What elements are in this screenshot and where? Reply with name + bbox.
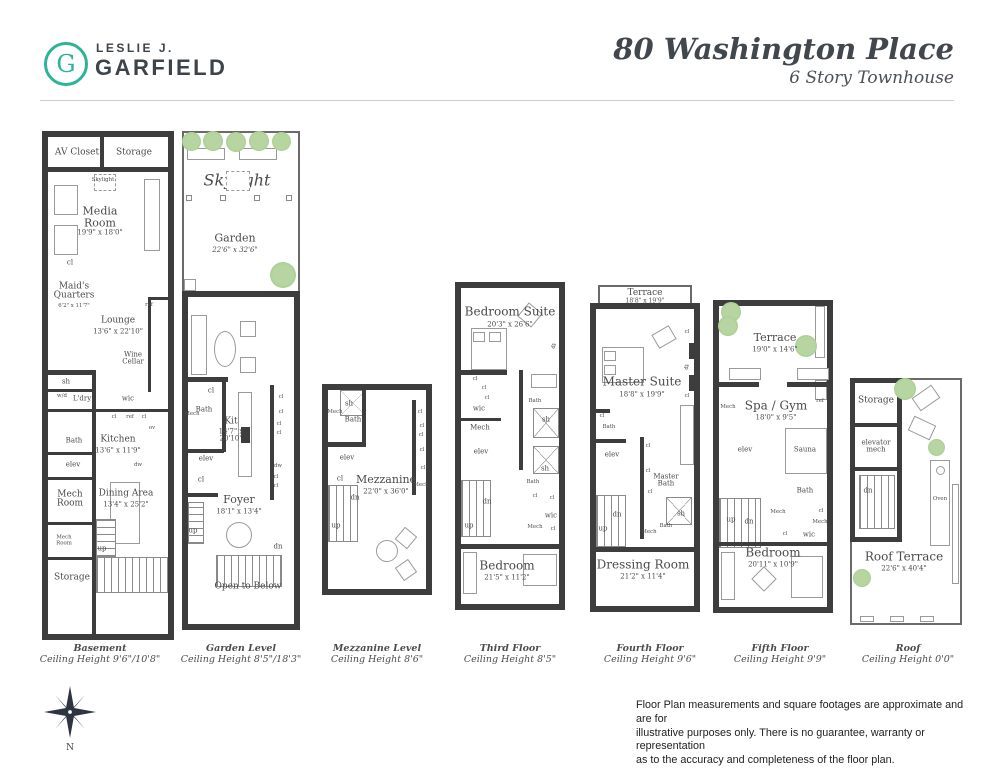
- parapet-post: [890, 616, 904, 622]
- fridge-label: ref: [816, 399, 824, 405]
- bath-label: Bath: [603, 425, 616, 431]
- dishwasher-label: dw: [134, 463, 142, 469]
- bench: [797, 368, 829, 380]
- caption-name: Roof: [823, 643, 993, 654]
- stairs: [96, 557, 168, 593]
- armchair: [395, 527, 418, 550]
- sofa: [721, 552, 735, 600]
- laundry-label: L'dry: [73, 395, 91, 402]
- plan-fourth-floor: Terrace 18'8" x 19'9" Master Suite 18'8"…: [590, 285, 700, 612]
- room-label: Bedroom: [745, 547, 800, 560]
- closet-label: cl: [277, 431, 282, 437]
- pillow: [473, 332, 485, 342]
- room-label: Storage: [54, 573, 90, 582]
- mech-label: Mech: [184, 412, 199, 418]
- stairs: [859, 475, 895, 529]
- room-label: AV Closet: [55, 148, 99, 157]
- closet-label: cl: [279, 395, 284, 401]
- wall-segment: [48, 557, 92, 560]
- closet-label: cl: [337, 475, 343, 482]
- room-label: Garden: [214, 232, 255, 245]
- wic-label: wic: [803, 531, 815, 538]
- tree: [894, 378, 916, 400]
- stairs-up-label: up: [599, 525, 608, 532]
- stairs-down-label: dn: [864, 487, 873, 494]
- bath-label: Bath: [797, 487, 814, 494]
- closet-label: cl: [198, 476, 204, 483]
- stairs-up-label: up: [189, 527, 198, 534]
- closet-label: cl: [208, 387, 214, 394]
- room-dims: 20'3" x 26'6": [487, 321, 532, 328]
- room-label: Dressing Room: [597, 559, 690, 572]
- sauna-label: Sauna: [794, 446, 816, 453]
- floor-plan-sheet: G LESLIE J. GARFIELD 80 Washington Place…: [0, 0, 994, 768]
- room-label: Bedroom: [479, 560, 534, 573]
- stairs: [596, 495, 626, 547]
- disclaimer-line: Floor Plan measurements and square foota…: [636, 699, 966, 727]
- room-label: Master Bath: [649, 474, 683, 489]
- page-title: 80 Washington Place: [613, 32, 954, 66]
- wall-segment: [362, 390, 366, 447]
- oven-label: ov: [149, 426, 155, 432]
- fridge-label: ref: [145, 303, 153, 309]
- room-label: Master Suite: [603, 376, 682, 389]
- wall-segment: [48, 370, 96, 375]
- bath-label: Bath: [660, 524, 673, 530]
- tree: [795, 335, 817, 357]
- closet-label: cl: [473, 377, 478, 383]
- closet-label: cl: [819, 509, 824, 515]
- plan-garden-level: Skylight Garden 22'6" x 32'6" cl Bath Me…: [182, 131, 300, 630]
- armchair: [651, 325, 676, 349]
- closet-label: cl: [648, 490, 653, 496]
- logo-letter: G: [56, 52, 75, 76]
- tree: [226, 132, 246, 152]
- stairs-up-label: up: [98, 545, 107, 552]
- tree: [203, 131, 223, 151]
- room-dims: 18'8" x 19'9": [619, 391, 664, 398]
- vanity: [680, 405, 694, 465]
- wall-segment: [188, 493, 218, 497]
- wall-segment: [855, 423, 897, 427]
- closet-label: cl: [274, 475, 279, 481]
- skylight-label: Skylight: [92, 178, 115, 184]
- room-label: Mech Room: [47, 491, 93, 510]
- closet-label: cl: [600, 414, 605, 420]
- room-dims: 22'6" x 32'6": [212, 246, 257, 254]
- wall-segment: [48, 522, 92, 525]
- room-dims: 22'6" x 40'4": [881, 565, 926, 572]
- sofa: [54, 225, 78, 255]
- fridge-label: ref: [126, 415, 134, 421]
- column-marker: [254, 195, 260, 201]
- closet-label: cl: [418, 410, 423, 416]
- wic-label: wic: [473, 405, 485, 412]
- mech-label: Mech: [327, 410, 342, 416]
- wic-label: wic: [545, 512, 557, 519]
- elevator-label: elev: [66, 461, 80, 468]
- mech-label: Mech: [470, 424, 490, 431]
- tree: [928, 439, 945, 456]
- elevator-label: elev: [738, 446, 752, 453]
- fireplace-label: fp: [682, 364, 688, 369]
- room-label: Mezzanine: [356, 474, 416, 486]
- plan-third-floor: Bedroom Suite 20'3" x 26'6" fp cl cl cl …: [455, 282, 565, 610]
- closet-label: cl: [550, 496, 555, 502]
- stairs: [188, 502, 204, 544]
- column-marker: [220, 195, 226, 201]
- room-label: Media Room: [77, 205, 123, 228]
- closet-label: cl: [685, 330, 690, 336]
- closet-label: cl: [421, 466, 426, 472]
- sink: [936, 466, 945, 475]
- fireplace-label: fp: [549, 343, 555, 348]
- bathtub: [531, 374, 557, 388]
- plan-fifth-floor: Terrace 19'0" x 14'6" Spa / Gym 18'0" x …: [713, 300, 833, 613]
- room-label: Storage: [116, 148, 152, 157]
- stairs-up-label: up: [465, 522, 474, 529]
- brand-name-last: GARFIELD: [95, 55, 227, 81]
- bath-label: Bath: [529, 399, 542, 405]
- room-label: Lounge: [101, 316, 135, 325]
- stairs: [719, 498, 761, 548]
- shower-label: sh: [541, 465, 549, 472]
- closet-label: cl: [274, 484, 279, 490]
- room-dims: 20'11" x 10'9": [748, 561, 798, 568]
- shower-label: sh: [677, 510, 685, 517]
- wall-segment: [719, 382, 759, 387]
- sofa: [54, 185, 78, 215]
- wall-segment: [48, 167, 168, 172]
- room-dims: 13'4" x 25'2": [103, 501, 148, 508]
- disclaimer-line: illustrative purposes only. There is no …: [636, 727, 966, 755]
- wall-segment: [640, 437, 644, 539]
- room-label: Terrace: [754, 332, 797, 344]
- wall-segment: [519, 370, 523, 470]
- tree: [270, 262, 296, 288]
- foyer-table: [226, 522, 252, 548]
- pillow: [604, 365, 616, 375]
- closet-label: cl: [783, 532, 788, 538]
- stairs-down-label: dn: [351, 494, 360, 501]
- sofa: [463, 552, 477, 594]
- room-dims: 18'1" x 13'4": [216, 508, 261, 515]
- roof-bulkhead: Storage elevator mech dn: [850, 378, 902, 542]
- compass-north-label: N: [38, 743, 102, 753]
- tree: [249, 131, 269, 151]
- wall-segment: [596, 547, 694, 552]
- bath-label: Bath: [527, 480, 540, 486]
- tree: [272, 132, 291, 151]
- planter: [815, 306, 825, 358]
- wall-segment: [855, 467, 897, 471]
- stairs-down-label: dn: [274, 543, 283, 550]
- room-label: Kitchen: [100, 435, 135, 444]
- room-label: Foyer: [223, 494, 255, 506]
- armchair: [751, 566, 776, 591]
- armchair: [395, 559, 417, 581]
- bath-label: Bath: [66, 437, 83, 444]
- room-label: Maid's Quarters: [51, 283, 97, 302]
- plan-roof: Storage elevator mech dn Oven Roof Terra…: [850, 378, 962, 625]
- room-dims: 21'5" x 11'2": [484, 574, 529, 581]
- room-label: Terrace: [628, 288, 663, 298]
- wall-segment: [148, 297, 168, 300]
- mech-label: Mech: [812, 520, 827, 526]
- wall-segment: [148, 297, 151, 392]
- caption-roof: Roof Ceiling Height 0'0": [823, 643, 993, 665]
- room-label: Spa / Gym: [745, 400, 807, 413]
- wall-segment: [48, 477, 92, 480]
- mech-label: Mech: [770, 510, 785, 516]
- header-divider: [40, 100, 954, 101]
- room-label: Dining Area: [99, 489, 154, 498]
- room-label: elevator mech: [857, 440, 895, 455]
- room-dims: 19'9" x 18'0": [77, 229, 122, 236]
- closet-label: cl: [420, 448, 425, 454]
- wall-segment: [48, 452, 92, 455]
- room-dims: 13'6" x 11'9": [95, 447, 140, 454]
- closet-label: cl: [67, 259, 73, 266]
- wall-segment: [48, 389, 92, 392]
- room-label: Roof Terrace: [865, 551, 943, 564]
- tree: [182, 132, 201, 151]
- wall-pier: [689, 375, 694, 391]
- oven-label: Oven: [933, 497, 947, 503]
- coffee-table: [214, 331, 236, 367]
- wall-segment: [596, 439, 626, 443]
- compass-star: [39, 686, 101, 738]
- room-dims: 14'7" x 20'10": [216, 429, 246, 444]
- armchair: [240, 357, 256, 373]
- closet-label: cl: [419, 433, 424, 439]
- room-dims: 13'6" x 22'10": [93, 328, 143, 335]
- planter: [184, 279, 196, 291]
- bath-label: Bath: [345, 416, 362, 423]
- elevator-label: elev: [474, 448, 488, 455]
- parapet-post: [860, 616, 874, 622]
- closet-label: cl: [533, 494, 538, 500]
- stairs-up-label: up: [332, 522, 341, 529]
- closet-label: cl: [112, 415, 117, 421]
- mech-label: Mech: [641, 530, 656, 536]
- mech-label: Mech: [413, 483, 428, 489]
- closet-label: cl: [277, 422, 282, 428]
- stairs-down-label: dn: [483, 498, 492, 505]
- sofa: [191, 315, 207, 375]
- brand-logo-icon: G: [44, 42, 88, 86]
- closet-label: cl: [551, 527, 556, 533]
- wall-segment: [461, 370, 507, 375]
- mech-label: Mech: [720, 405, 735, 411]
- disclaimer-line: as to the accuracy and completeness of t…: [636, 754, 966, 768]
- column-marker: [286, 195, 292, 201]
- compass-rose-icon: N: [38, 686, 102, 753]
- room-label: Kit: [224, 417, 237, 426]
- room-dims: 18'0" x 9'5": [756, 414, 797, 421]
- fourth-floor-house: Master Suite 18'8" x 19'9" cl fp cl cl B…: [590, 303, 700, 612]
- room-dims: 19'0" x 14'6": [752, 346, 797, 353]
- lounge-chair: [908, 416, 937, 441]
- shower-label: sh: [542, 416, 550, 423]
- side-table: [376, 540, 398, 562]
- wall-segment: [48, 409, 92, 412]
- shower-label: sh: [345, 400, 353, 407]
- wall-segment: [461, 418, 501, 421]
- tree: [718, 316, 738, 336]
- armchair: [240, 321, 256, 337]
- wall-segment: [328, 442, 364, 447]
- column-marker: [186, 195, 192, 201]
- elevator-label: elev: [605, 451, 619, 458]
- wall-segment: [188, 449, 224, 453]
- wall-segment: [100, 137, 104, 167]
- page-subtitle: 6 Story Townhouse: [789, 68, 954, 88]
- stairs-up-label: up: [727, 516, 736, 523]
- closet-label: cl: [685, 394, 690, 400]
- room-dims: 6'2" x 11'7": [58, 304, 90, 310]
- closet-label: cl: [279, 410, 284, 416]
- stairs-down-label: dn: [745, 518, 754, 525]
- dishwasher-label: dw: [274, 464, 282, 470]
- room-dims: 21'2" x 11'4": [620, 573, 665, 580]
- washer-dryer-label: w/d: [57, 394, 67, 400]
- garden-house: cl Bath Mech Kit 14'7" x 20'10" elev cl …: [182, 291, 300, 630]
- parapet-post: [920, 616, 934, 622]
- room-label: Wine Cellar: [119, 352, 147, 367]
- pillow: [604, 351, 616, 361]
- plan-mezzanine: sh Mech Bath elev cl dn up Mezzanine 22'…: [322, 384, 432, 595]
- brand-name-first: LESLIE J.: [96, 41, 174, 55]
- closet-label: cl: [142, 415, 147, 421]
- pillow: [489, 332, 501, 342]
- open-to-below-label: Open to Below: [215, 582, 282, 591]
- closet-label: cl: [420, 424, 425, 430]
- wall-pier: [689, 343, 694, 359]
- media-console: [144, 179, 160, 251]
- elevator-label: elev: [340, 454, 354, 461]
- room-label: Bedroom Suite: [465, 306, 556, 319]
- closet-label: cl: [646, 444, 651, 450]
- disclaimer-text: Floor Plan measurements and square foota…: [636, 699, 966, 768]
- wall-segment: [787, 382, 827, 387]
- room-label: Mech Room: [52, 535, 76, 546]
- wall-segment: [461, 544, 559, 549]
- room-dims: 22'0" x 36'0": [363, 488, 408, 495]
- closet-label: cl: [482, 386, 487, 392]
- elevator-label: elev: [199, 455, 213, 462]
- terrace-outline: Terrace 18'8" x 19'9": [598, 285, 692, 305]
- caption-ceiling: Ceiling Height 0'0": [823, 654, 993, 665]
- plan-basement: Skylight AV Closet Storage Media Room 19…: [42, 131, 174, 640]
- bench: [729, 368, 761, 380]
- tree: [853, 569, 871, 587]
- room-label: Storage: [858, 396, 894, 405]
- shower-label: sh: [62, 378, 70, 385]
- closet-label: cl: [485, 396, 490, 402]
- wall-segment: [96, 409, 168, 412]
- mech-label: Mech: [527, 525, 542, 531]
- stairs-down-label: dn: [613, 511, 622, 518]
- planter: [952, 484, 959, 584]
- wic-label: wic: [122, 395, 134, 402]
- skylight-outline: [226, 171, 250, 191]
